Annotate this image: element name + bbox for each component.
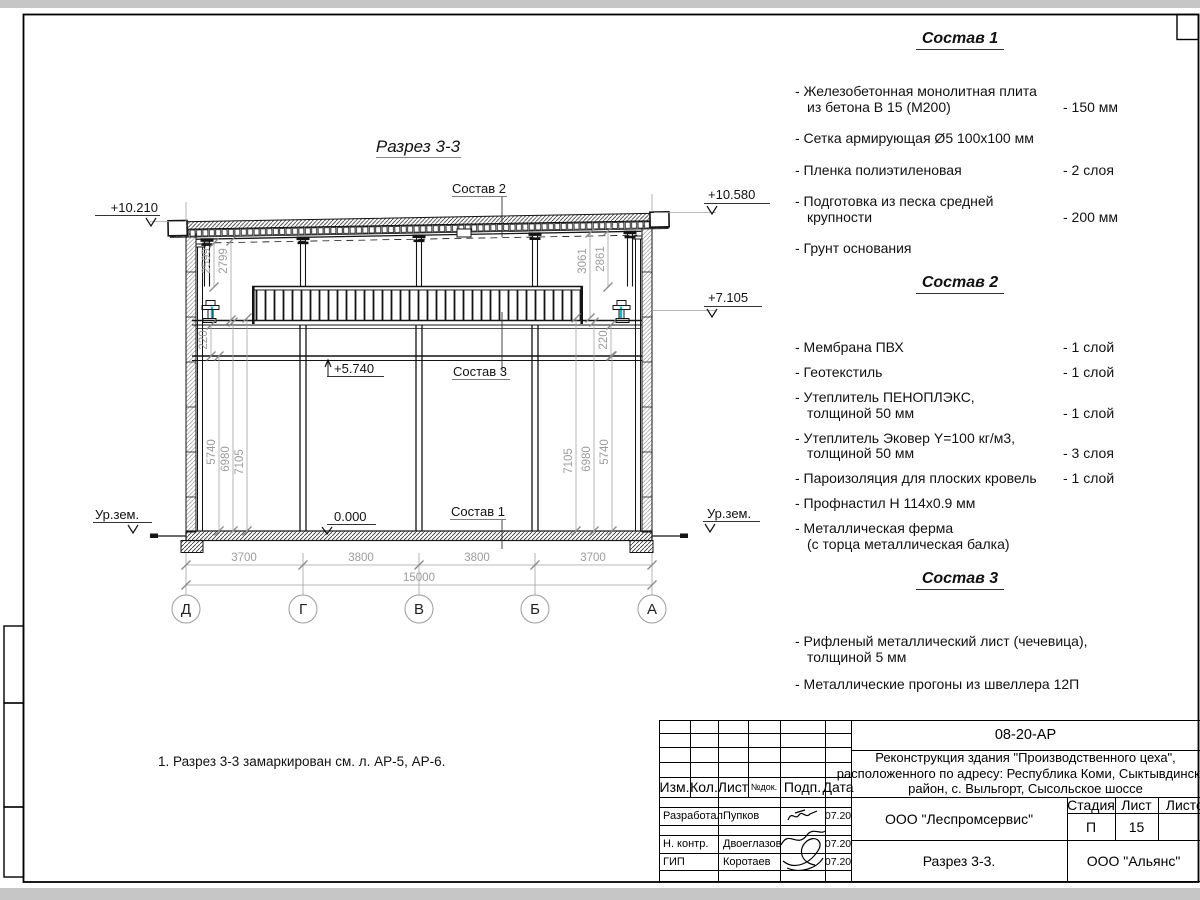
roof-edge-cap-left xyxy=(168,220,187,235)
axis-g: Г xyxy=(299,601,307,618)
composition-list-2: Состав 2 - Мембрана ПВХ- 1 слой- Геотекс… xyxy=(795,274,1155,562)
signature xyxy=(782,807,825,825)
composition-list-3: Состав 3 - Рифленый металлический лист (… xyxy=(795,570,1155,705)
list-item: - Геотекстиль- 1 слой xyxy=(795,365,1155,381)
axis-a: А xyxy=(647,601,657,618)
list-item: - Профнастил Н 114х0.9 мм xyxy=(795,496,1155,512)
callout-sostav2: Состав 2 xyxy=(452,181,506,196)
col-list: Лист xyxy=(718,777,748,797)
view-title: Разрез 3-3 xyxy=(376,137,461,156)
elev-5740: +5.740 xyxy=(334,361,374,376)
floor-slab xyxy=(186,531,652,541)
dim-220-left: 220 xyxy=(198,330,210,349)
ground-level-left: Ур.зем. xyxy=(95,507,139,522)
dim-220-right: 220 xyxy=(598,330,610,349)
dim-3061: 3061 xyxy=(577,248,589,274)
roof-edge-cap-right xyxy=(650,212,669,227)
list-item: - Металлические прогоны из швеллера 12П xyxy=(795,677,1155,693)
dim-3700-1: 3700 xyxy=(231,552,257,564)
dim-6980-right: 6980 xyxy=(581,446,593,472)
list-item: - Подготовка из песка средней крупности-… xyxy=(795,194,1155,225)
list-item: - Сетка армирующая Ø5 100х100 мм xyxy=(795,131,1155,147)
list-item: - Утеплитель ПЕНОПЛЭКС, толщиной 50 мм- … xyxy=(795,390,1155,421)
dim-7105-left: 7105 xyxy=(234,449,246,475)
list-item: - Железобетонная монолитная плита из бет… xyxy=(795,84,1155,115)
drawing-name: Разрез 3-3. xyxy=(851,840,1067,881)
contractor: ООО "Альянс" xyxy=(1067,840,1200,881)
callout-sostav3: Состав 3 xyxy=(453,364,507,379)
composition-1-items: - Железобетонная монолитная плита из бет… xyxy=(795,84,1155,257)
foundation-left xyxy=(181,541,203,553)
row-date: 07.20 xyxy=(825,807,851,825)
dim-2599: 2599 xyxy=(201,248,213,274)
elev-10210: +10.210 xyxy=(111,200,158,215)
ground-level-right: Ур.зем. xyxy=(707,506,751,521)
composition-1-title: Состав 1 xyxy=(795,30,1125,50)
signature xyxy=(777,827,829,873)
dim-5740-left: 5740 xyxy=(206,439,218,465)
composition-2-title: Состав 2 xyxy=(795,274,1125,294)
stage-value: П xyxy=(1067,813,1115,840)
title-block: Изм. Кол. Лист №док. Подп. Дата Разработ… xyxy=(659,720,1200,882)
dim-3800-1: 3800 xyxy=(348,552,374,564)
list-item: - Мембрана ПВХ- 1 слой xyxy=(795,340,1155,356)
sheets-label: Листов xyxy=(1158,797,1200,813)
composition-2-items: - Мембрана ПВХ- 1 слой- Геотекстиль- 1 с… xyxy=(795,340,1155,552)
left-wall xyxy=(186,234,196,532)
project-description: Реконструкция здания "Производственного … xyxy=(851,750,1200,797)
doc-number: 08-20-АР xyxy=(851,720,1200,750)
composition-list-1: Состав 1 - Железобетонная монолитная пли… xyxy=(795,30,1155,273)
list-item: - Рифленый металлический лист (чечевица)… xyxy=(795,634,1155,665)
axis-v: В xyxy=(414,601,424,618)
composition-3-title: Состав 3 xyxy=(795,570,1125,590)
list-item: - Грунт основания xyxy=(795,241,1155,257)
list-item: - Пленка полиэтиленовая- 2 слоя xyxy=(795,163,1155,179)
dim-3800-2: 3800 xyxy=(464,552,490,564)
col-izm: Изм. xyxy=(659,777,690,797)
roof-vent-detail xyxy=(457,229,471,237)
row-role: Н. контр. xyxy=(660,835,721,853)
dim-total: 15000 xyxy=(403,572,435,584)
list-item: - Пароизоляция для плоских кровель- 1 сл… xyxy=(795,471,1155,487)
sheet-note: 1. Разрез 3-3 замаркирован см. л. АР-5, … xyxy=(158,754,445,769)
row-name: Коротаев xyxy=(720,853,783,870)
col-podp: Подп. xyxy=(780,777,825,797)
col-kol: Кол. xyxy=(690,777,718,797)
stage-label: Стадия xyxy=(1067,797,1115,813)
sheet-label: Лист xyxy=(1115,797,1158,813)
dim-5740-right: 5740 xyxy=(599,439,611,465)
list-item: - Металлическая ферма (с торца металличе… xyxy=(795,521,1155,552)
drawing-sheet: 3700 3800 3800 3700 15000 5740 6980 7105… xyxy=(0,0,1200,900)
row-name: Двоеглазов xyxy=(720,835,783,853)
col-ndok: №док. xyxy=(748,777,780,797)
dim-2861: 2861 xyxy=(595,246,607,272)
dim-2799: 2799 xyxy=(218,248,230,274)
organization: ООО "Леспромсервис" xyxy=(851,797,1067,840)
elev-10580: +10.580 xyxy=(708,187,755,202)
dim-7105-right: 7105 xyxy=(563,448,575,474)
foundation-right xyxy=(630,541,653,553)
dim-3700-2: 3700 xyxy=(580,552,606,564)
sheet-number: 15 xyxy=(1115,813,1158,840)
list-item: - Утеплитель Эковер Y=100 кг/м3, толщино… xyxy=(795,431,1155,462)
elev-7105: +7.105 xyxy=(708,290,748,305)
elev-0000: 0.000 xyxy=(334,509,367,524)
row-name: Пупков xyxy=(720,807,783,825)
axis-b: Б xyxy=(530,601,540,618)
callout-sostav1: Состав 1 xyxy=(451,504,505,519)
composition-3-items: - Рифленый металлический лист (чечевица)… xyxy=(795,634,1155,693)
row-role: ГИП xyxy=(660,853,721,870)
row-role: Разработал xyxy=(660,807,721,825)
dim-6980-left: 6980 xyxy=(220,446,232,472)
axis-d: Д xyxy=(181,601,191,618)
